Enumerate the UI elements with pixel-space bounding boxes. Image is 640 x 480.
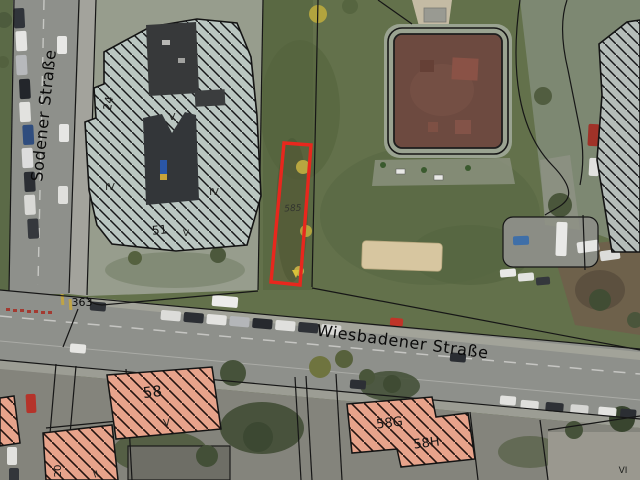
building-complex-topleft (85, 19, 261, 251)
sandpit (362, 241, 443, 272)
storey-label-iv-right: IV (209, 187, 219, 198)
storey-label-v-top: V (169, 112, 176, 123)
house-number-58: 58 (142, 382, 163, 402)
house-number-51: 51 (151, 222, 168, 238)
house-number-58h: 58H (413, 434, 441, 452)
storey-label-v-mid: V (183, 229, 190, 239)
house-number-24: 24 (101, 95, 116, 111)
storey-label-vi-right: VI (619, 466, 628, 476)
selected-parcel-number: 585 (284, 204, 302, 215)
house-number-20: 20 (53, 465, 64, 478)
map-canvas[interactable]: Sodener Straße Wiesbadener Straße 363 58… (0, 0, 640, 480)
map-viewport[interactable]: Sodener Straße Wiesbadener Straße 363 58… (0, 0, 640, 480)
parcel-number-363: 363 (72, 296, 93, 309)
storey-label-iv-left: IV (105, 182, 115, 193)
